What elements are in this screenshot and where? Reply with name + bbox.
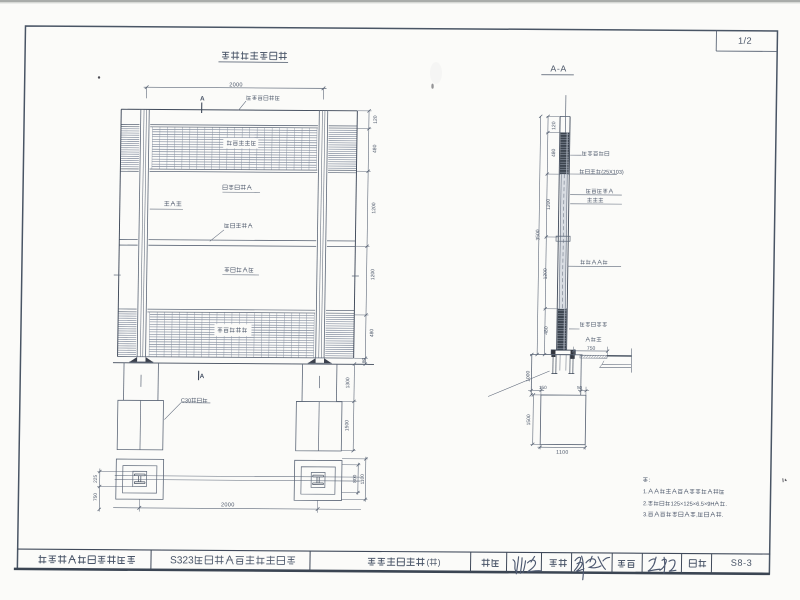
svg-text:125×125×6.5×9H: 125×125×6.5×9H [671,501,715,507]
svg-text:(: ( [426,557,429,567]
svg-text:): ) [438,557,441,567]
svg-text:(25X103): (25X103) [601,170,624,176]
svg-text:2000: 2000 [229,82,243,88]
svg-text:225: 225 [93,475,99,483]
svg-text:480: 480 [551,148,557,157]
svg-text:1200: 1200 [543,268,549,279]
svg-text:1/2: 1/2 [738,36,752,46]
svg-text:1100: 1100 [360,474,366,485]
svg-text:80: 80 [361,358,366,364]
svg-text:A: A [200,95,205,102]
svg-text:800: 800 [352,474,358,482]
svg-text:3500: 3500 [535,229,541,240]
svg-text:S323: S323 [170,555,194,566]
svg-text:120: 120 [373,115,379,124]
svg-text:2.: 2. [643,501,648,507]
svg-text:50: 50 [577,385,583,390]
svg-text:1.: 1. [643,489,648,495]
svg-text:1200: 1200 [370,269,376,280]
svg-text:2000: 2000 [221,502,235,508]
svg-text:120: 120 [551,121,557,130]
svg-text:1000: 1000 [525,371,531,382]
svg-text:1500: 1500 [344,420,350,431]
svg-text:480: 480 [369,329,375,338]
svg-text:480: 480 [544,326,550,335]
svg-text:S8-3: S8-3 [731,558,752,568]
svg-text:150: 150 [539,385,547,390]
svg-text:480: 480 [372,144,378,153]
svg-text:1200: 1200 [371,202,377,213]
svg-text:A: A [200,373,205,380]
svg-text:1200: 1200 [546,199,552,210]
svg-text:1300: 1300 [345,377,351,388]
svg-text:1500: 1500 [526,414,532,425]
svg-text:3.: 3. [643,512,648,518]
svg-text:A-A: A-A [550,63,567,73]
svg-text:1100: 1100 [556,450,568,456]
svg-text:750: 750 [93,493,99,501]
svg-text:C30: C30 [181,398,191,404]
